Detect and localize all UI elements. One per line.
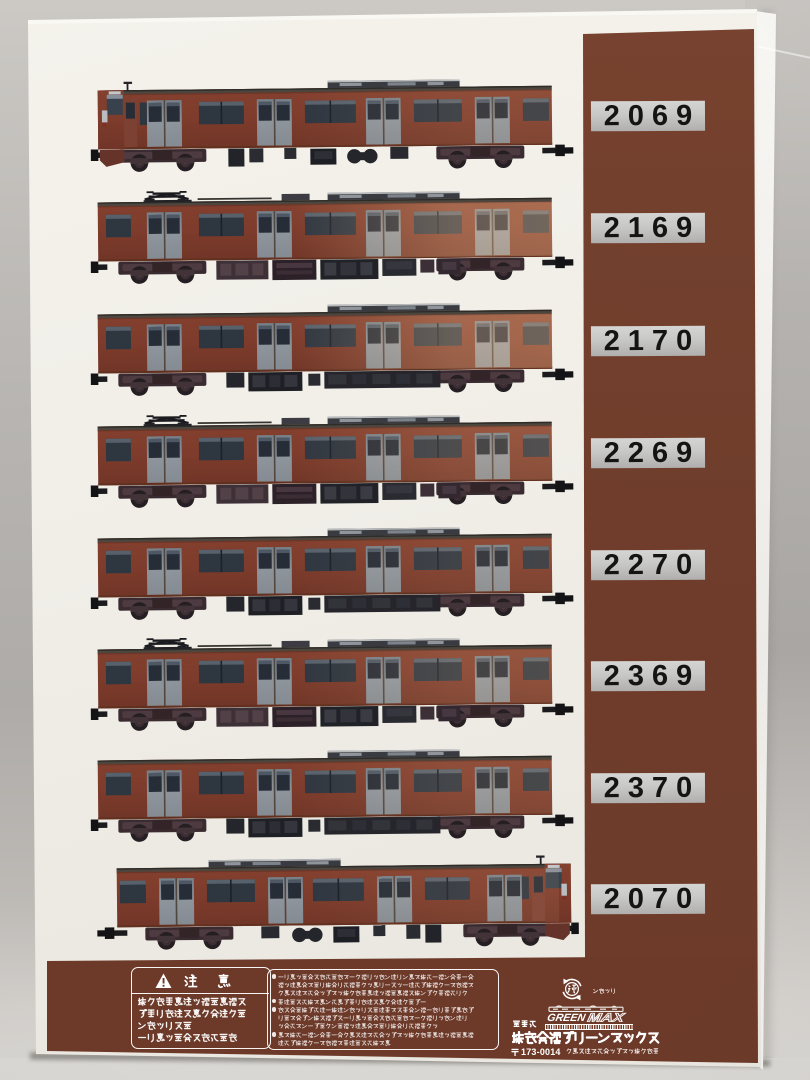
svg-text:GREEN: GREEN <box>546 1012 587 1024</box>
svg-text:MAX: MAX <box>587 1011 627 1025</box>
